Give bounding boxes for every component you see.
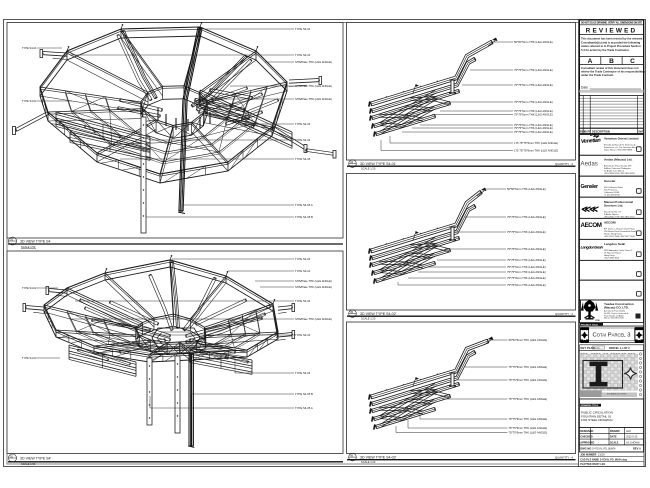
svg-text:75*75*6mm THK (L&G ANGLE): 75*75*6mm THK (L&G ANGLE) [509,378,548,382]
svg-text:TYPE S4-02: TYPE S4-02 [295,299,311,303]
svg-text:3D VIEW TYPE S4': 3D VIEW TYPE S4' [20,457,51,461]
svg-text:LangdonSeah: LangdonSeah [581,245,604,250]
svg-text:A: A [588,58,593,65]
svg-text:75*75*6mm THK (L&G ANGLE): 75*75*6mm THK (L&G ANGLE) [514,113,553,117]
svg-text:Gensler: Gensler [604,179,616,183]
svg-text:TYPE S4-05 A: TYPE S4-05 A [295,406,313,410]
svg-text:Taipa, Macau t 853 2882 8888: Taipa, Macau t 853 2882 8888 [604,148,633,151]
svg-text:75*75*6mm THK (L&G ANGLE): 75*75*6mm THK (L&G ANGLE) [514,109,553,113]
svg-text:3D VIEW TYPE S4: 3D VIEW TYPE S4 [20,240,51,244]
svg-text:75*75*6mm THK (L&G ANGLE): 75*75*6mm THK (L&G ANGLE) [514,100,553,104]
svg-text:SHS/Plate THK (L&G ANGLE): SHS/Plate THK (L&G ANGLE) [295,279,332,283]
svg-text:75*75*6mm THK (L&G ANGLE): 75*75*6mm THK (L&G ANGLE) [507,247,546,251]
svg-text:SCALE: SCALE [610,441,619,444]
svg-text:DESIGNED: DESIGNED [580,430,593,433]
svg-text:SHS/Plate THK (L&G ANGLE): SHS/Plate THK (L&G ANGLE) [295,60,332,64]
svg-text:TYPE S4-03: TYPE S4-03 [22,356,37,360]
svg-text:This document has been revised: This document has been revised by the re… [581,37,642,41]
svg-text:75*75*6mm THK (L&G ANGLE): 75*75*6mm THK (L&G ANGLE) [507,215,546,219]
svg-text:AECOM: AECOM [604,221,616,225]
svg-text:QUANTITY : 4: QUANTITY : 4 [555,312,573,316]
svg-text:DRAWING TITLE: DRAWING TITLE [581,404,599,407]
svg-text:JOB NUMBER: JOB NUMBER [580,453,596,456]
svg-text:LEO: LEO [626,430,631,433]
svg-text:SHS/Plate THK (L&G ANGLE): SHS/Plate THK (L&G ANGLE) [295,97,332,101]
svg-text:75*75*6mm THK (L&G ANGLE): 75*75*6mm THK (L&G ANGLE) [509,417,548,421]
svg-text:PLOTTED ON BY LEO: PLOTTED ON BY LEO [580,463,605,466]
svg-text:Consultant(s)(s) and is accord: Consultant(s)(s) and is accorded the fol… [581,40,640,44]
svg-text:50*50*6mm THK (L&G ANGLE): 50*50*6mm THK (L&G ANGLE) [514,40,553,44]
svg-text:TYPE S4-01: TYPE S4-01 [22,46,37,50]
svg-text:Gensler: Gensler [581,184,599,190]
svg-text:75*75*6mm THK (L&G ANGLE): 75*75*6mm THK (L&G ANGLE) [514,126,553,130]
svg-text:status referred to in Project: status referred to in Project Procedure … [581,44,641,48]
svg-text:75*75*6mm THK (L&G ANGLE): 75*75*6mm THK (L&G ANGLE) [507,276,546,280]
svg-text:75*75*6mm THK (L&G ANGLE): 75*75*6mm THK (L&G ANGLE) [514,68,553,72]
svg-text:TYPE S4-05 B: TYPE S4-05 B [295,392,313,396]
svg-text:50*50*6mm THK (L&G ANGLE): 50*50*6mm THK (L&G ANGLE) [509,338,548,342]
svg-text:SCALE 1:50: SCALE 1:50 [21,245,36,249]
svg-text:B: B [609,58,614,65]
svg-text:TYPE S4-02: TYPE S4-02 [22,286,37,290]
svg-text:TYPE S4-02: TYPE S4-02 [22,99,37,103]
svg-text:DO NOT SCALE DRAWING. VERIFY A: DO NOT SCALE DRAWING. VERIFY ALL DIMENSI… [581,22,642,25]
svg-text:75*75*6mm THK (L&G ANGLE): 75*75*6mm THK (L&G ANGLE) [507,270,546,274]
svg-text:TYPE S4-05 B: TYPE S4-05 B [295,215,313,219]
svg-text:L75 75*75*6mm THK (L&G ANGLE): L75 75*75*6mm THK (L&G ANGLE) [514,149,558,153]
svg-text:APPROVED: APPROVED [580,441,594,444]
svg-text:CHECKED: CHECKED [580,436,593,439]
svg-text:TYPE S4-02: TYPE S4-02 [295,257,311,261]
svg-text:TYPE S4-01: TYPE S4-01 [295,27,311,31]
svg-text:1:1000: 1:1000 [593,348,600,350]
svg-text:75*75*6mm THK (L&G ANGLE): 75*75*6mm THK (L&G ANGLE) [507,265,546,269]
svg-text:Venetian Orient Limited: Venetian Orient Limited [604,137,639,141]
svg-text:C: C [630,58,635,65]
svg-text:DRAWN: DRAWN [610,430,620,433]
svg-text:TYPE S4-01: TYPE S4-01 [295,269,311,273]
svg-text:S-FOUN_PD_BW04: S-FOUN_PD_BW04 [592,447,616,451]
svg-text:75*75*6mm THK (L&G ANGLE): 75*75*6mm THK (L&G ANGLE) [509,431,548,435]
svg-text:CAD FILE NAME S-FOUN_PD_BW04.d: CAD FILE NAME S-FOUN_PD_BW04.dwg [580,458,627,461]
svg-text:(Macau) CO. LTD.: (Macau) CO. LTD. [604,306,629,310]
svg-text:Consultant review of this docu: Consultant review of this document does … [581,66,639,70]
svg-text:SCALE 1:20: SCALE 1:20 [361,460,376,464]
svg-text:75*75*6mm THK (L&G ANGLE): 75*75*6mm THK (L&G ANGLE) [509,365,548,369]
svg-text:Aedas: Aedas [581,162,599,168]
svg-text:5.4 for action by the Trade Co: 5.4 for action by the Trade Contractor. [581,48,630,52]
svg-text:REV A: REV A [633,447,641,451]
svg-text:Aedas (Macau) Ltd.: Aedas (Macau) Ltd. [604,158,633,162]
svg-text:t 852 2830 3500: t 852 2830 3500 [604,256,620,259]
svg-text:TYPE S4-04: TYPE S4-04 [295,138,311,142]
svg-text:SCALE 1:20: SCALE 1:20 [361,317,376,321]
svg-text:AECOM: AECOM [581,222,602,229]
svg-text:AS SHOWN: AS SHOWN [626,441,640,444]
svg-text:75*75*6mm THK (L&G ANGLE): 75*75*6mm THK (L&G ANGLE) [514,130,553,134]
svg-text:TYPE S4-03: TYPE S4-03 [295,122,311,126]
svg-text:SHS/Plate THK (L&G ANGLE): SHS/Plate THK (L&G ANGLE) [295,285,332,289]
svg-text:DWG NO: DWG NO [580,447,591,451]
svg-text:2022-5-15: 2022-5-15 [626,436,638,439]
svg-text:TYPE S4-02: TYPE S4-02 [295,333,311,337]
svg-text:QUANTITY : 4: QUANTITY : 4 [555,162,573,166]
svg-text:FOR STEEL DRAWING: FOR STEEL DRAWING [581,418,613,422]
svg-text:YCM: YCM [595,320,600,322]
svg-text:relieve the Trade Contractor o: relieve the Trade Contractor of his resp… [581,70,646,74]
svg-text:t 853 2833 1055 f 853 2833 07: t 853 2833 1055 f 853 2833 0766 [604,172,635,175]
svg-text:DESCRIPTION: DESCRIPTION [592,129,610,133]
svg-text:75*75*6mm THK (L&G ANGLE): 75*75*6mm THK (L&G ANGLE) [507,230,546,234]
svg-text:75*75*6mm THK (L&G ANGLE): 75*75*6mm THK (L&G ANGLE) [509,426,548,430]
svg-text:SHS/Plate THK (L&G ANGLE): SHS/Plate THK (L&G ANGLE) [295,84,332,88]
svg-text:QUANTITY : 4: QUANTITY : 4 [555,455,573,459]
svg-text:L75 75*75*6mm THK (L&G ANGLE): L75 75*75*6mm THK (L&G ANGLE) [514,141,558,145]
svg-text:PARCEL 1, LOT 2: PARCEL 1, LOT 2 [609,347,630,350]
svg-text:REVIEWED: REVIEWED [586,28,638,35]
svg-text:75*75*6mm THK (L&G ANGLE): 75*75*6mm THK (L&G ANGLE) [509,397,548,401]
svg-text:TYPE S4-05: TYPE S4-05 [295,157,311,161]
svg-text:ESTRADA DO ISTMO: ESTRADA DO ISTMO [607,393,627,396]
svg-text:SCALE 1:50: SCALE 1:50 [21,462,36,466]
svg-text:Date :: Date : [581,85,590,89]
svg-text:DATE: DATE [610,436,617,439]
svg-text:SHS/Plate THK (L&G ANGLE): SHS/Plate THK (L&G ANGLE) [295,317,332,321]
svg-text:Langdon Seah: Langdon Seah [604,242,625,246]
svg-text:3D VIEW TYPE S4-02': 3D VIEW TYPE S4-02' [360,312,397,316]
svg-text:3D VIEW TYPE S4-03': 3D VIEW TYPE S4-03' [360,455,397,459]
svg-text:TYPE S4-05 A: TYPE S4-05 A [295,203,313,207]
svg-text:DATE: DATE [584,129,591,133]
svg-text:3D VIEW TYPE S4-01': 3D VIEW TYPE S4-01' [360,162,397,166]
svg-text:21028: 21028 [598,453,605,456]
svg-text:INIT: INIT [639,129,644,133]
svg-text:Macau t 853 2871 6041: Macau t 853 2871 6041 [604,317,624,320]
svg-text:Services Ltd.: Services Ltd. [604,204,623,208]
svg-text:t 1 415.433.3700: t 1 415.433.3700 [604,193,620,196]
svg-text:TYPE S4-02: TYPE S4-02 [295,53,311,57]
svg-text:50*50*6mm THK (L&G ANGLE): 50*50*6mm THK (L&G ANGLE) [507,187,546,191]
svg-text:SCALE 1:20: SCALE 1:20 [361,167,376,171]
svg-text:under the Trade Contract.: under the Trade Contract. [581,73,614,77]
svg-text:TYPE S4-04: TYPE S4-04 [295,371,311,375]
svg-text:75*75*6mm THK (L&G ANGLE): 75*75*6mm THK (L&G ANGLE) [507,258,546,262]
svg-text:t 852 2317 7600 f 852 2317 76: t 852 2317 7600 f 852 2317 7609 [604,235,635,238]
svg-text:75*75*6mm THK (L&G ANGLE): 75*75*6mm THK (L&G ANGLE) [514,83,553,87]
svg-text:75*75*6mm THK (L&G ANGLE): 75*75*6mm THK (L&G ANGLE) [507,283,546,287]
